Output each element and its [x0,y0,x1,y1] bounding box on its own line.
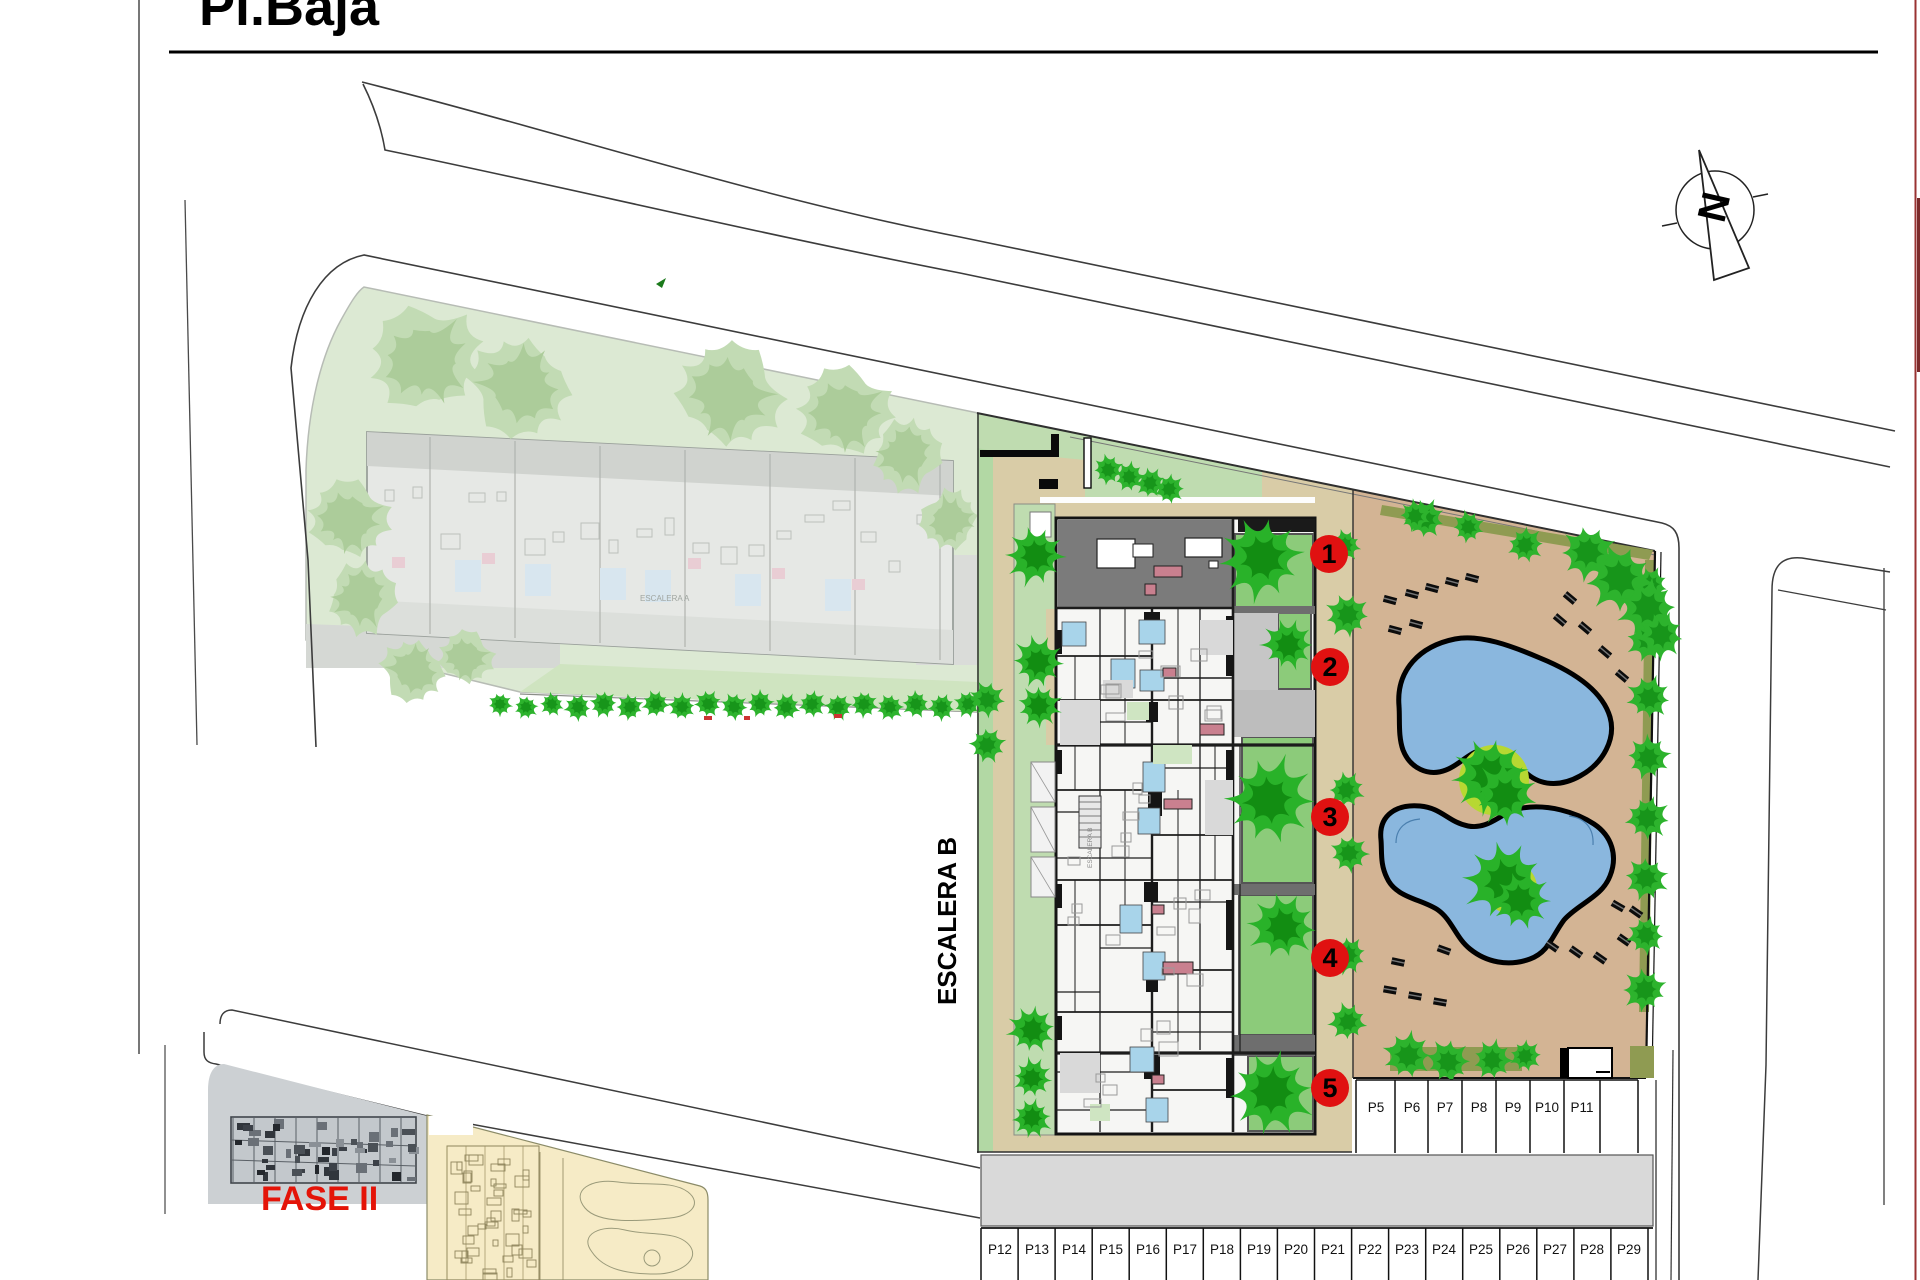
svg-text:ESCALERA B: ESCALERA B [932,837,962,1005]
svg-text:P28: P28 [1580,1242,1604,1257]
svg-text:P29: P29 [1617,1242,1641,1257]
svg-text:P25: P25 [1469,1242,1493,1257]
svg-text:Pl.Baja: Pl.Baja [199,0,380,37]
svg-text:4: 4 [1322,943,1337,973]
svg-text:P26: P26 [1506,1242,1530,1257]
svg-text:P10: P10 [1535,1100,1559,1115]
svg-text:ESCALERA A: ESCALERA A [640,594,690,603]
svg-text:P21: P21 [1321,1242,1345,1257]
svg-text:P14: P14 [1062,1242,1087,1257]
svg-text:P9: P9 [1505,1100,1522,1115]
svg-text:P19: P19 [1247,1242,1271,1257]
svg-text:2: 2 [1322,652,1337,682]
svg-text:P22: P22 [1358,1242,1382,1257]
svg-text:FASE II: FASE II [261,1180,378,1218]
svg-text:P17: P17 [1173,1242,1197,1257]
svg-text:P8: P8 [1471,1100,1488,1115]
svg-text:P15: P15 [1099,1242,1123,1257]
svg-text:ESCALERA B: ESCALERA B [1087,828,1094,868]
svg-text:P24: P24 [1432,1242,1457,1257]
svg-text:P6: P6 [1404,1100,1421,1115]
svg-text:P7: P7 [1437,1100,1454,1115]
svg-text:1: 1 [1321,539,1336,569]
svg-text:P13: P13 [1025,1242,1049,1257]
svg-text:P16: P16 [1136,1242,1160,1257]
svg-text:5: 5 [1322,1073,1337,1103]
svg-text:P18: P18 [1210,1242,1234,1257]
svg-text:P12: P12 [988,1242,1012,1257]
svg-text:P20: P20 [1284,1242,1308,1257]
svg-text:3: 3 [1322,802,1337,832]
svg-text:P11: P11 [1570,1100,1593,1115]
svg-text:P23: P23 [1395,1242,1419,1257]
svg-text:P27: P27 [1543,1242,1567,1257]
svg-text:P5: P5 [1368,1100,1385,1115]
